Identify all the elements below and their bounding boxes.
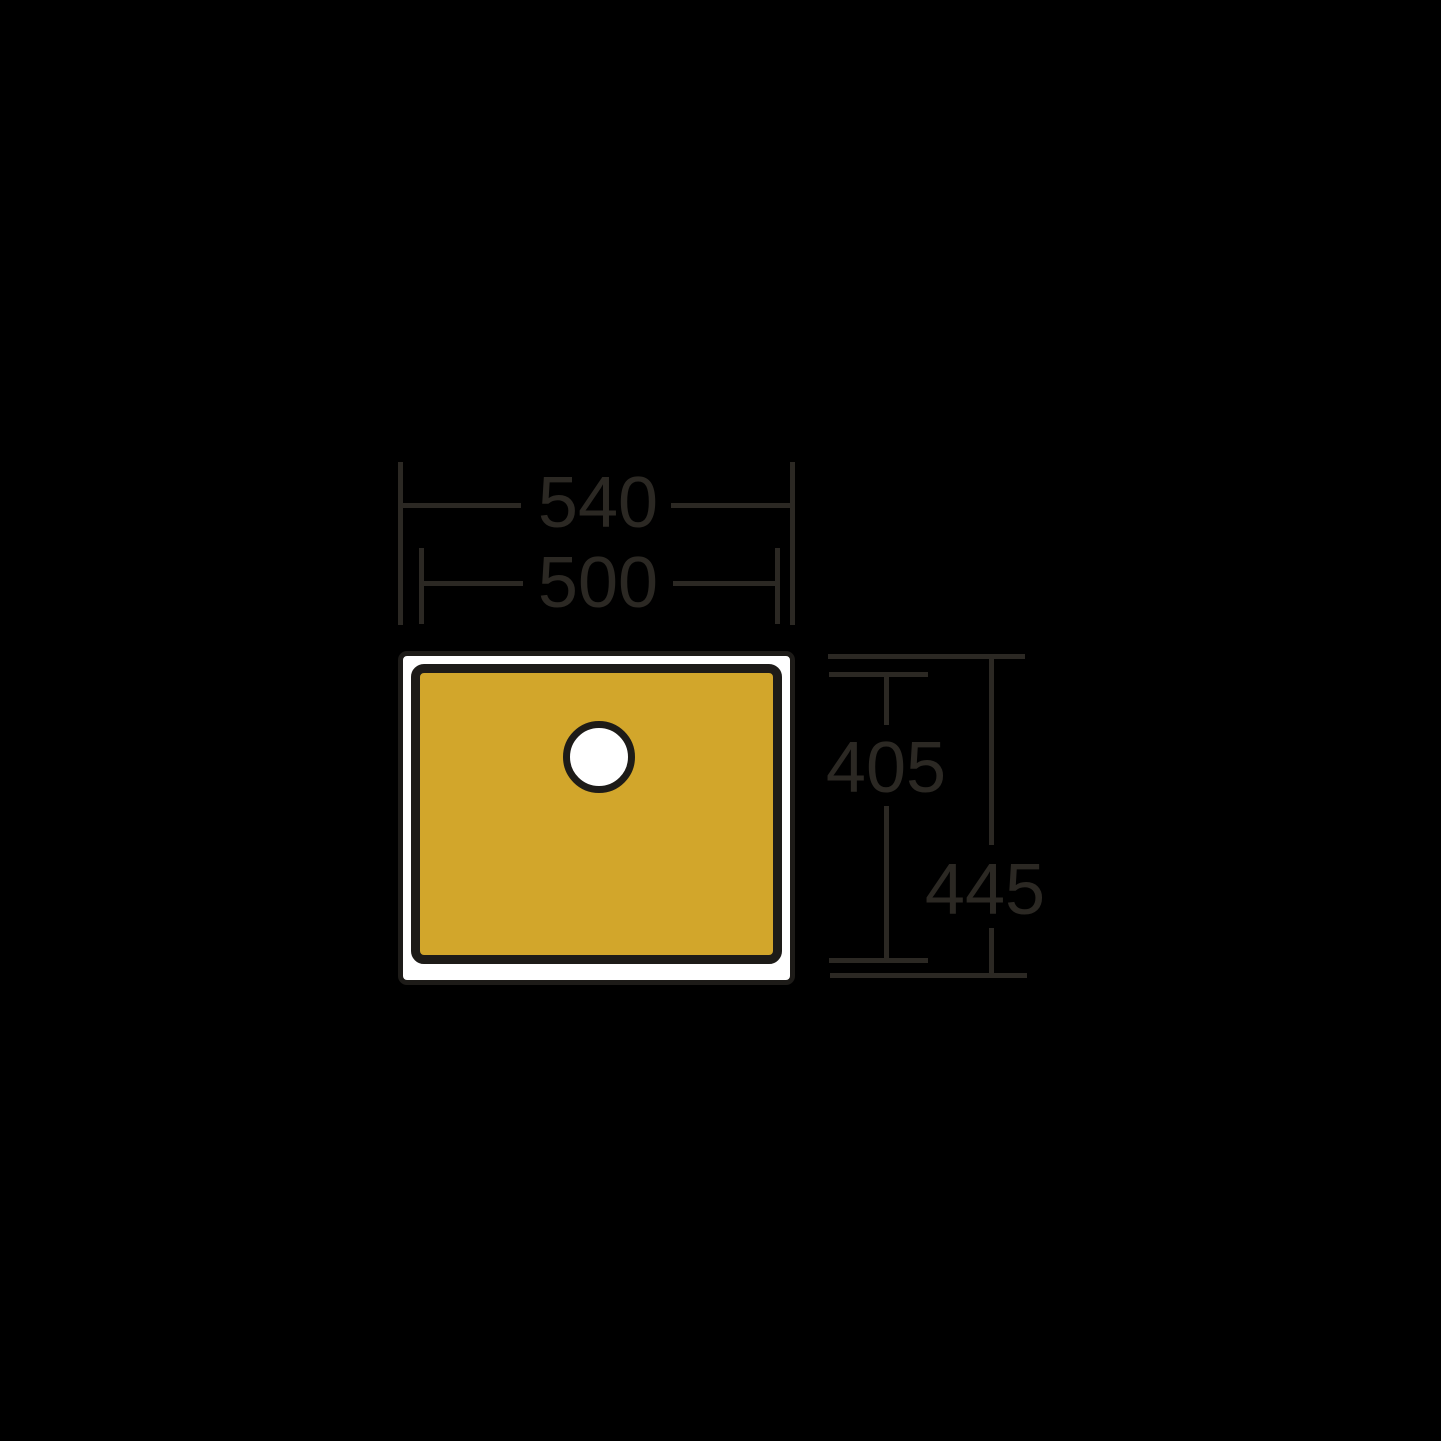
- inner-depth-extension-line-bottom: [829, 958, 928, 963]
- outer-depth-dimension-line-bottom: [989, 928, 994, 978]
- outer-width-extension-line-right: [790, 462, 795, 625]
- inner-depth-label: 405: [811, 733, 961, 803]
- inner-depth-dimension-line-bottom: [884, 806, 889, 961]
- inner-width-dimension-line-right: [673, 581, 777, 586]
- outer-depth-label: 445: [910, 855, 1060, 925]
- inner-width-extension-line-left: [419, 548, 424, 624]
- outer-depth-extension-line-top: [828, 654, 1025, 659]
- outer-width-dimension-line-right: [671, 503, 791, 508]
- inner-width-extension-line-right: [775, 548, 780, 624]
- drawing-canvas: 540 500 405 445: [0, 0, 1441, 1441]
- inner-depth-dimension-line-top: [884, 675, 889, 725]
- outer-width-label: 540: [523, 468, 673, 538]
- outer-depth-extension-line-bottom: [830, 973, 1027, 978]
- tap-hole: [563, 721, 635, 793]
- outer-width-dimension-line-left: [401, 503, 521, 508]
- inner-depth-extension-line-top: [829, 672, 928, 677]
- inner-width-dimension-line-left: [422, 581, 523, 586]
- inner-width-label: 500: [523, 548, 673, 618]
- outer-width-extension-line-left: [398, 462, 403, 625]
- outer-depth-dimension-line-top: [989, 657, 994, 845]
- sink-basin: [411, 664, 782, 964]
